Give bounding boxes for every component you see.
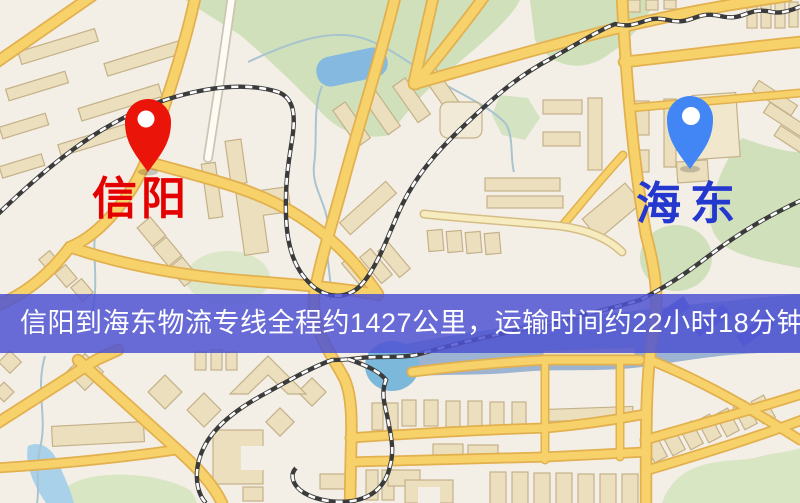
- route-info-banner: 信阳到海东物流专线全程约1427公里，运输时间约22小时18分钟.: [0, 294, 800, 353]
- origin-city-label: 信阳: [92, 176, 190, 221]
- destination-pin-hole: [682, 107, 700, 125]
- map-canvas[interactable]: [0, 0, 800, 503]
- destination-city-label: 海东: [636, 181, 744, 226]
- map-view: 信阳 海东 信阳到海东物流专线全程约1427公里，运输时间约22小时18分钟.: [0, 0, 800, 503]
- origin-pin-hole: [138, 111, 155, 128]
